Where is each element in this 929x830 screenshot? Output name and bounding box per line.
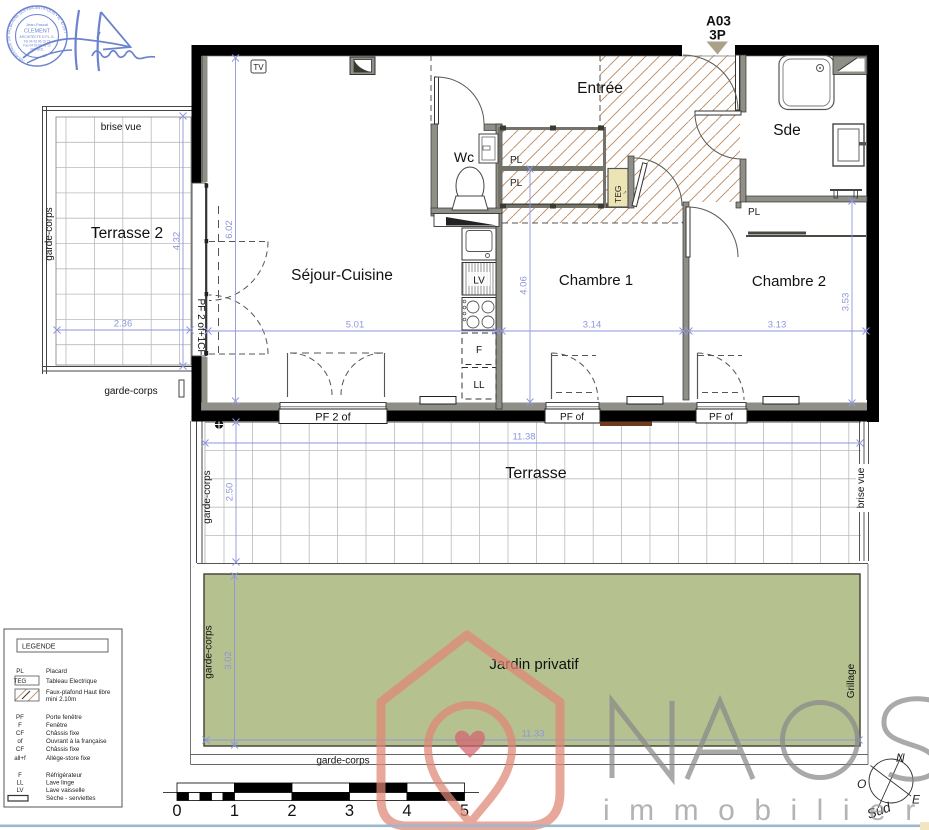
- svg-text:Terrasse 2: Terrasse 2: [91, 225, 163, 242]
- svg-text:PF 2 of+1CF: PF 2 of+1CF: [195, 299, 206, 356]
- svg-text:2: 2: [287, 802, 296, 820]
- svg-text:mini 2.10m: mini 2.10m: [46, 696, 76, 703]
- svg-text:Ouvrant à la française: Ouvrant à la française: [46, 738, 107, 745]
- svg-text:3: 3: [345, 802, 354, 820]
- svg-text:ARCHITECTE D.P.L.G.: ARCHITECTE D.P.L.G.: [19, 35, 54, 39]
- svg-text:LEGENDE: LEGENDE: [22, 644, 56, 651]
- svg-text:brise vue: brise vue: [856, 467, 867, 508]
- svg-text:F: F: [18, 722, 22, 729]
- svg-text:PF: PF: [16, 714, 24, 721]
- svg-text:Fenêtre: Fenêtre: [46, 722, 68, 729]
- svg-text:N: N: [896, 751, 905, 765]
- svg-text:garde-corps: garde-corps: [204, 625, 215, 678]
- svg-text:11.38: 11.38: [512, 432, 535, 443]
- svg-text:CF: CF: [16, 730, 24, 737]
- svg-text:Entrée: Entrée: [577, 80, 623, 97]
- svg-text:LV: LV: [16, 787, 24, 794]
- svg-text:PL: PL: [16, 668, 24, 675]
- svg-text:brise vue: brise vue: [101, 122, 142, 133]
- svg-text:4: 4: [402, 802, 411, 820]
- svg-text:Châssis fixe: Châssis fixe: [46, 746, 80, 753]
- svg-text:Porte fenêtre: Porte fenêtre: [46, 714, 82, 721]
- svg-text:3.13: 3.13: [768, 320, 787, 331]
- svg-text:CLEMENT: CLEMENT: [24, 29, 51, 35]
- svg-text:Placard: Placard: [46, 668, 68, 675]
- svg-text:11.33: 11.33: [521, 729, 544, 740]
- svg-text:all+f: all+f: [14, 755, 26, 762]
- svg-text:PF of: PF of: [709, 412, 733, 423]
- svg-text:F: F: [18, 772, 22, 779]
- svg-text:Grillage: Grillage: [846, 663, 857, 698]
- svg-text:LL: LL: [17, 780, 24, 787]
- svg-text:LL: LL: [473, 380, 485, 391]
- svg-text:PF 2 of: PF 2 of: [315, 412, 351, 424]
- svg-text:Chambre 2: Chambre 2: [752, 273, 826, 290]
- svg-text:CF: CF: [16, 746, 24, 753]
- svg-text:Jean-Pascal: Jean-Pascal: [26, 22, 48, 27]
- svg-text:Allège-store fixe: Allège-store fixe: [46, 755, 91, 762]
- svg-text:5.01: 5.01: [346, 320, 365, 331]
- svg-text:garde-corps: garde-corps: [44, 207, 55, 260]
- svg-text:LV: LV: [473, 276, 485, 287]
- svg-text:3.14: 3.14: [583, 320, 602, 331]
- svg-text:PL: PL: [510, 155, 523, 166]
- svg-text:TEG: TEG: [14, 678, 27, 685]
- svg-text:Châssis fixe: Châssis fixe: [46, 730, 80, 737]
- svg-text:1: 1: [230, 802, 239, 820]
- svg-text:F: F: [476, 345, 482, 356]
- svg-text:Faux-plafond Haut libre: Faux-plafond Haut libre: [46, 689, 111, 696]
- svg-text:garde-corps: garde-corps: [316, 756, 369, 767]
- svg-text:TV: TV: [253, 63, 264, 72]
- svg-text:2.50: 2.50: [225, 483, 236, 502]
- svg-text:Chambre 1: Chambre 1: [559, 272, 633, 289]
- svg-text:3.53: 3.53: [841, 293, 852, 312]
- svg-text:Réfrigérateur: Réfrigérateur: [46, 772, 82, 779]
- svg-text:4.06: 4.06: [519, 276, 530, 295]
- svg-text:Séjour-Cuisine: Séjour-Cuisine: [291, 267, 393, 284]
- svg-text:PL: PL: [510, 178, 523, 189]
- svg-text:3.02: 3.02: [223, 651, 234, 670]
- svg-text:Terrasse: Terrasse: [505, 465, 566, 482]
- svg-text:O: O: [857, 777, 866, 791]
- svg-text:garde-corps: garde-corps: [104, 386, 157, 397]
- svg-text:PL: PL: [748, 207, 761, 218]
- svg-text:0: 0: [172, 802, 181, 820]
- svg-text:4.32: 4.32: [172, 232, 183, 251]
- svg-text:Sèche - serviettes: Sèche - serviettes: [46, 795, 96, 802]
- svg-text:Sde: Sde: [773, 122, 801, 139]
- svg-text:A03: A03: [706, 14, 731, 29]
- svg-text:6.02: 6.02: [224, 220, 235, 239]
- svg-text:3P: 3P: [709, 28, 726, 43]
- svg-text:of: of: [17, 738, 22, 745]
- svg-text:2.36: 2.36: [114, 319, 133, 330]
- svg-text:garde-corps: garde-corps: [202, 470, 213, 523]
- svg-text:Wc: Wc: [454, 149, 474, 165]
- svg-text:Tableau Electrique: Tableau Electrique: [46, 678, 97, 685]
- svg-text:immobilier: immobilier: [603, 794, 929, 827]
- svg-text:PF of: PF of: [560, 412, 584, 423]
- svg-text:Lave linge: Lave linge: [46, 780, 75, 787]
- svg-text:Lave vaisselle: Lave vaisselle: [46, 787, 85, 794]
